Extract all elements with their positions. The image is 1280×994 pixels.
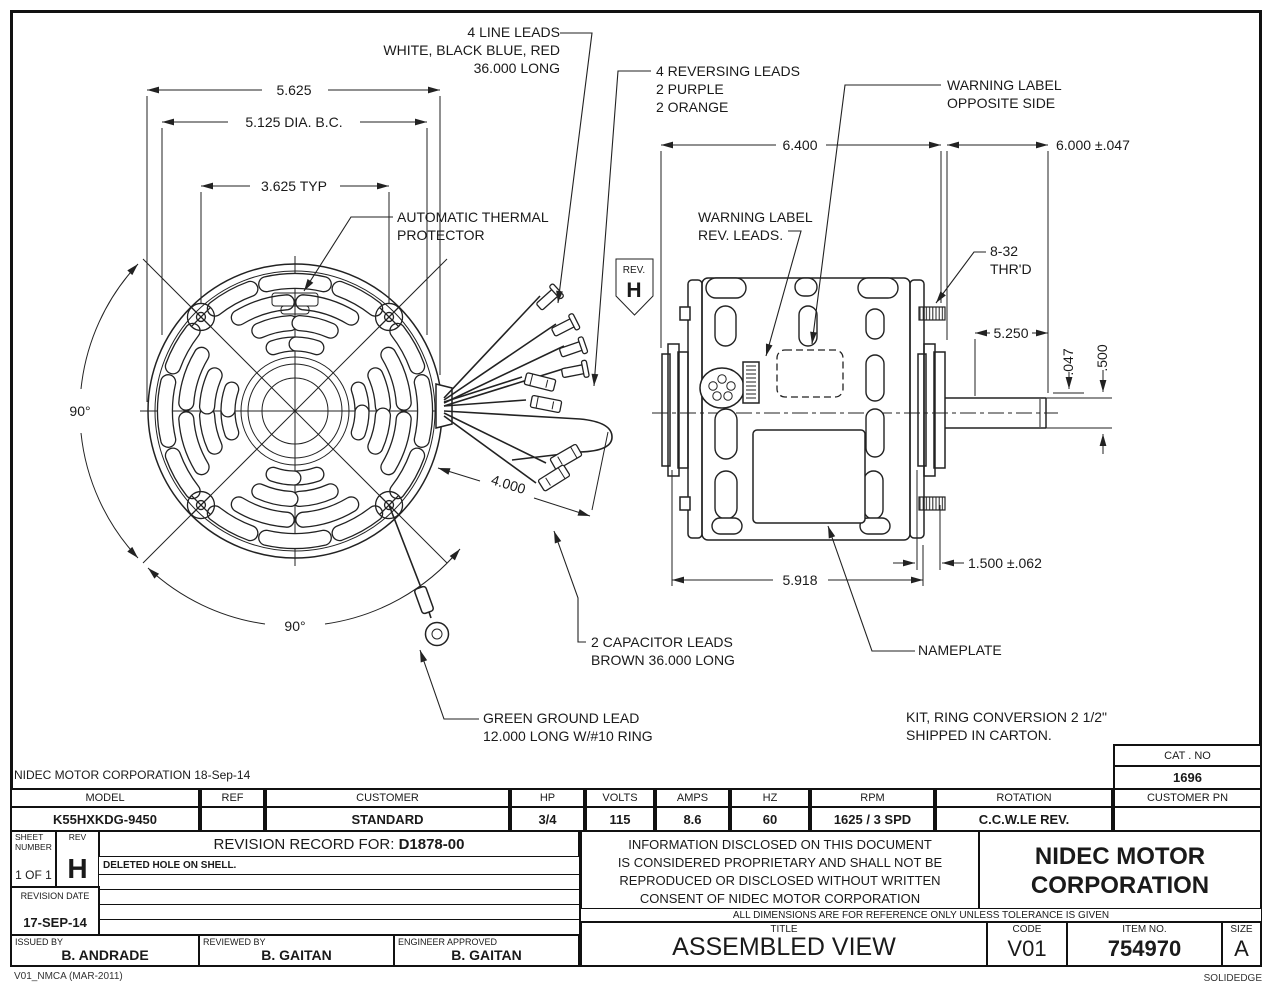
callout-line-leads: 4 LINE LEADS	[467, 24, 560, 40]
revision-row-1: DELETED HOLE ON SHELL.	[98, 856, 580, 875]
callout-reversing-leads: 4 REVERSING LEADS	[656, 63, 800, 79]
assembled-view-drawing: 90° 90° 5.625 5.125 DIA. B.C. 3.625 TYP	[0, 0, 1280, 770]
reviewed-by-value: B. GAITAN	[200, 947, 393, 963]
spec-header-8: ROTATION	[935, 788, 1113, 808]
callout-thread: 8-32	[990, 243, 1018, 259]
drawing-sheet: 90° 90° 5.625 5.125 DIA. B.C. 3.625 TYP	[0, 0, 1280, 994]
spec-header-9: CUSTOMER PN	[1113, 788, 1262, 808]
sheet-number-cell: SHEET NUMBER 1 OF 1	[10, 830, 57, 888]
callout-thermal: AUTOMATIC THERMAL	[397, 209, 549, 225]
code-value: V01	[988, 936, 1066, 962]
sheet-number-value: 1 OF 1	[12, 868, 55, 882]
rev-value: H	[57, 853, 98, 885]
svg-text:PROTECTOR: PROTECTOR	[397, 227, 485, 243]
side-view: 6.400 6.000 ±.047 5.250 .047 .500 1.500 …	[652, 137, 1130, 588]
svg-text:THR'D: THR'D	[990, 261, 1032, 277]
dim-angle-left: 90°	[69, 403, 90, 419]
callout-warning-rev: WARNING LABEL	[698, 209, 813, 225]
revision-row-4	[98, 904, 580, 920]
svg-text:SHIPPED IN CARTON.: SHIPPED IN CARTON.	[906, 727, 1052, 743]
reviewed-by-label: REVIEWED BY	[203, 937, 266, 947]
spec-value-7: 1625 / 3 SPD	[810, 806, 935, 832]
dim-shaft-ext: 5.250	[993, 325, 1028, 341]
dim-overall-length: 6.000 ±.047	[1056, 137, 1130, 153]
callout-nameplate: NAMEPLATE	[918, 642, 1002, 658]
engineer-approved-label: ENGINEER APPROVED	[398, 937, 497, 947]
size-label: SIZE	[1223, 924, 1260, 935]
svg-text:2 PURPLE: 2 PURPLE	[656, 81, 724, 97]
warning-label-small	[743, 362, 759, 403]
revision-record-number: D1878-00	[399, 836, 465, 853]
spec-value-1	[200, 806, 265, 832]
issued-by-cell: ISSUED BY B. ANDRADE	[10, 934, 200, 967]
rev-label: REV	[57, 833, 98, 843]
mounting-stud-bottom	[919, 497, 945, 510]
svg-text:REV. LEADS.: REV. LEADS.	[698, 227, 783, 243]
size-cell: SIZE A	[1221, 921, 1262, 967]
dim-shaft-dia: .500	[1094, 344, 1110, 371]
corp-line: NIDEC MOTOR CORPORATION 18-Sep-14	[14, 768, 250, 782]
svg-text:12.000 LONG W/#10 RING: 12.000 LONG W/#10 RING	[483, 728, 653, 744]
ground-lead	[389, 505, 449, 646]
spec-value-2: STANDARD	[265, 806, 510, 832]
spec-header-6: HZ	[730, 788, 810, 808]
issued-by-value: B. ANDRADE	[12, 947, 198, 963]
svg-text:OPPOSITE SIDE: OPPOSITE SIDE	[947, 95, 1055, 111]
footer-left: V01_NMCA (MAR-2011)	[14, 971, 123, 982]
size-value: A	[1223, 936, 1260, 962]
code-cell: CODE V01	[986, 921, 1068, 967]
dim-shell-length: 5.918	[782, 572, 817, 588]
warning-label-opposite	[777, 350, 843, 397]
item-no-label: ITEM NO.	[1068, 924, 1221, 935]
spec-value-6: 60	[730, 806, 810, 832]
spec-value-3: 3/4	[510, 806, 585, 832]
rev-flag-label: REV.	[623, 265, 645, 276]
engineer-approved-cell: ENGINEER APPROVED B. GAITAN	[393, 934, 580, 967]
callout-kit: KIT, RING CONVERSION 2 1/2"	[906, 709, 1107, 725]
dim-stud-length: 1.500 ±.062	[968, 555, 1042, 571]
spec-value-9	[1113, 806, 1262, 832]
item-no-cell: ITEM NO. 754970	[1066, 921, 1223, 967]
spec-header-4: VOLTS	[585, 788, 655, 808]
spec-header-5: AMPS	[655, 788, 730, 808]
svg-text:BROWN 36.000 LONG: BROWN 36.000 LONG	[591, 652, 735, 668]
dim-bolt-chord: 3.625 TYP	[261, 178, 327, 194]
revision-date-value: 17-SEP-14	[12, 915, 98, 930]
rev-cell: REV H	[55, 830, 100, 888]
dim-lead-exit: 4.000	[489, 471, 527, 497]
cat-no-label: CAT . NO	[1113, 744, 1262, 767]
rev-flag: REV. H	[616, 259, 653, 315]
callout-ground: GREEN GROUND LEAD	[483, 710, 639, 726]
svg-text:WHITE, BLACK BLUE, RED: WHITE, BLACK BLUE, RED	[383, 42, 560, 58]
revision-row-3	[98, 889, 580, 905]
callout-capacitor: 2 CAPACITOR LEADS	[591, 634, 733, 650]
spec-value-0: K55HXKDG-9450	[10, 806, 200, 832]
spec-header-2: CUSTOMER	[265, 788, 510, 808]
spec-header-1: REF	[200, 788, 265, 808]
lead-wires	[444, 283, 612, 491]
revision-date-cell: REVISION DATE 17-SEP-14	[10, 886, 100, 936]
revision-record-header: REVISION RECORD FOR: D1878-00	[98, 830, 580, 858]
cat-no-value: 1696	[1113, 765, 1262, 790]
revision-record-label: REVISION RECORD FOR:	[214, 836, 395, 853]
nameplate-rect	[753, 430, 865, 523]
spec-header-3: HP	[510, 788, 585, 808]
code-label: CODE	[988, 924, 1066, 935]
mounting-stud-top	[919, 307, 945, 320]
rev-flag-value: H	[626, 279, 641, 302]
engineer-approved-value: B. GAITAN	[395, 947, 578, 963]
lead-grommet	[700, 368, 744, 408]
company-name: NIDEC MOTOR CORPORATION	[978, 830, 1262, 910]
spec-header-7: RPM	[810, 788, 935, 808]
callout-warning-opposite: WARNING LABEL	[947, 77, 1062, 93]
wire-terminals	[524, 283, 589, 491]
legal-notice: INFORMATION DISCLOSED ON THIS DOCUMENT I…	[580, 830, 980, 910]
revision-row-2	[98, 874, 580, 890]
dim-bolt-circle: 5.125 DIA. B.C.	[245, 114, 342, 130]
revision-date-label: REVISION DATE	[12, 891, 98, 901]
svg-text:2 ORANGE: 2 ORANGE	[656, 99, 728, 115]
svg-text:36.000 LONG: 36.000 LONG	[474, 60, 560, 76]
dim-angle-bottom: 90°	[284, 618, 305, 634]
dim-body-length: 6.400	[782, 137, 817, 153]
spec-value-4: 115	[585, 806, 655, 832]
issued-by-label: ISSUED BY	[15, 937, 63, 947]
spec-header-0: MODEL	[10, 788, 200, 808]
reviewed-by-cell: REVIEWED BY B. GAITAN	[198, 934, 395, 967]
title-cell: TITLE ASSEMBLED VIEW	[580, 921, 988, 967]
title-value: ASSEMBLED VIEW	[582, 933, 986, 962]
spec-value-5: 8.6	[655, 806, 730, 832]
front-view: 90° 90° 5.625 5.125 DIA. B.C. 3.625 TYP	[69, 82, 612, 646]
dim-front-width: 5.625	[276, 82, 311, 98]
sheet-number-label: SHEET NUMBER	[15, 833, 52, 853]
item-no-value: 754970	[1068, 936, 1221, 962]
spec-value-8: C.C.W.LE REV.	[935, 806, 1113, 832]
footer-right: SOLIDEDGE	[1152, 973, 1262, 984]
dim-shoulder: .047	[1060, 348, 1076, 375]
